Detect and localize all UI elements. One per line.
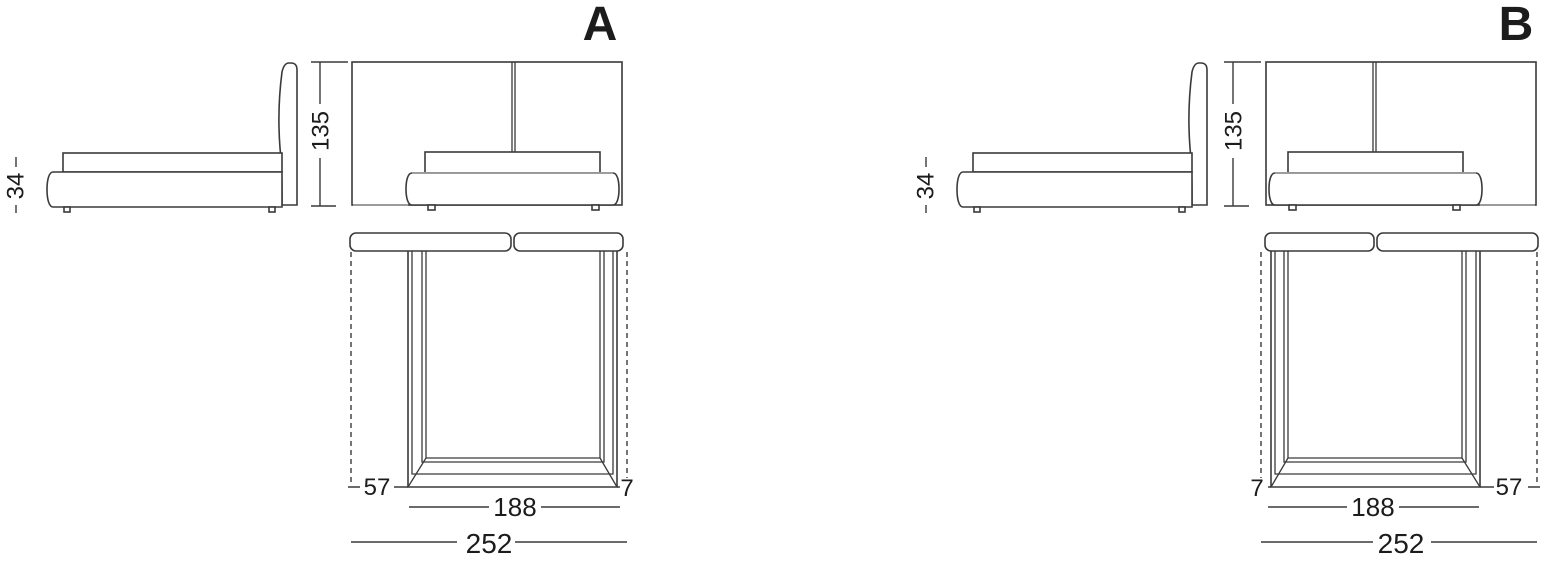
bed-base-front — [406, 173, 619, 205]
mattress-front — [425, 152, 600, 173]
dim-base-height-a: 34 — [2, 173, 29, 200]
dim-outer-left-b: 7 — [1250, 475, 1263, 502]
headboard-panel-plan — [350, 233, 511, 251]
bed-front-view — [352, 62, 622, 210]
bed-technical-drawing: A 34 135 57 7 188 252 B 34 135 7 57 188 … — [0, 0, 1546, 562]
version-b-group: B 34 135 7 57 188 252 — [912, 0, 1540, 559]
bed-side-view — [47, 63, 297, 212]
bed-foot — [428, 205, 435, 210]
version-label-a: A — [583, 0, 618, 51]
dim-outer-right-b: 57 — [1496, 474, 1523, 501]
bed-front-view-b — [1266, 62, 1536, 210]
mattress-side — [63, 153, 282, 172]
dim-bed-width-a: 188 — [493, 492, 536, 522]
dim-outer-left-a: 57 — [364, 474, 391, 501]
bed-side-view-b — [957, 63, 1207, 212]
headboard-panel-plan — [514, 233, 623, 251]
dim-headboard-height-b: 135 — [1220, 111, 1247, 151]
bed-base-side — [47, 172, 282, 207]
dim-total-width-b: 252 — [1378, 528, 1425, 559]
dim-bed-width-b: 188 — [1351, 492, 1394, 522]
dim-base-height-b: 34 — [912, 173, 939, 200]
bed-foot — [64, 207, 70, 212]
bed-foot — [269, 207, 275, 212]
dim-headboard-height-a: 135 — [307, 111, 334, 151]
version-a-group: A 34 135 57 7 188 252 — [2, 0, 633, 559]
drawing-svg: A 34 135 57 7 188 252 B 34 135 7 57 188 … — [0, 0, 1546, 562]
version-label-b: B — [1499, 0, 1534, 51]
dim-outer-right-a: 7 — [620, 475, 633, 502]
bed-frame-outer — [408, 246, 617, 487]
bed-foot — [592, 205, 599, 210]
dim-total-width-a: 252 — [466, 528, 513, 559]
